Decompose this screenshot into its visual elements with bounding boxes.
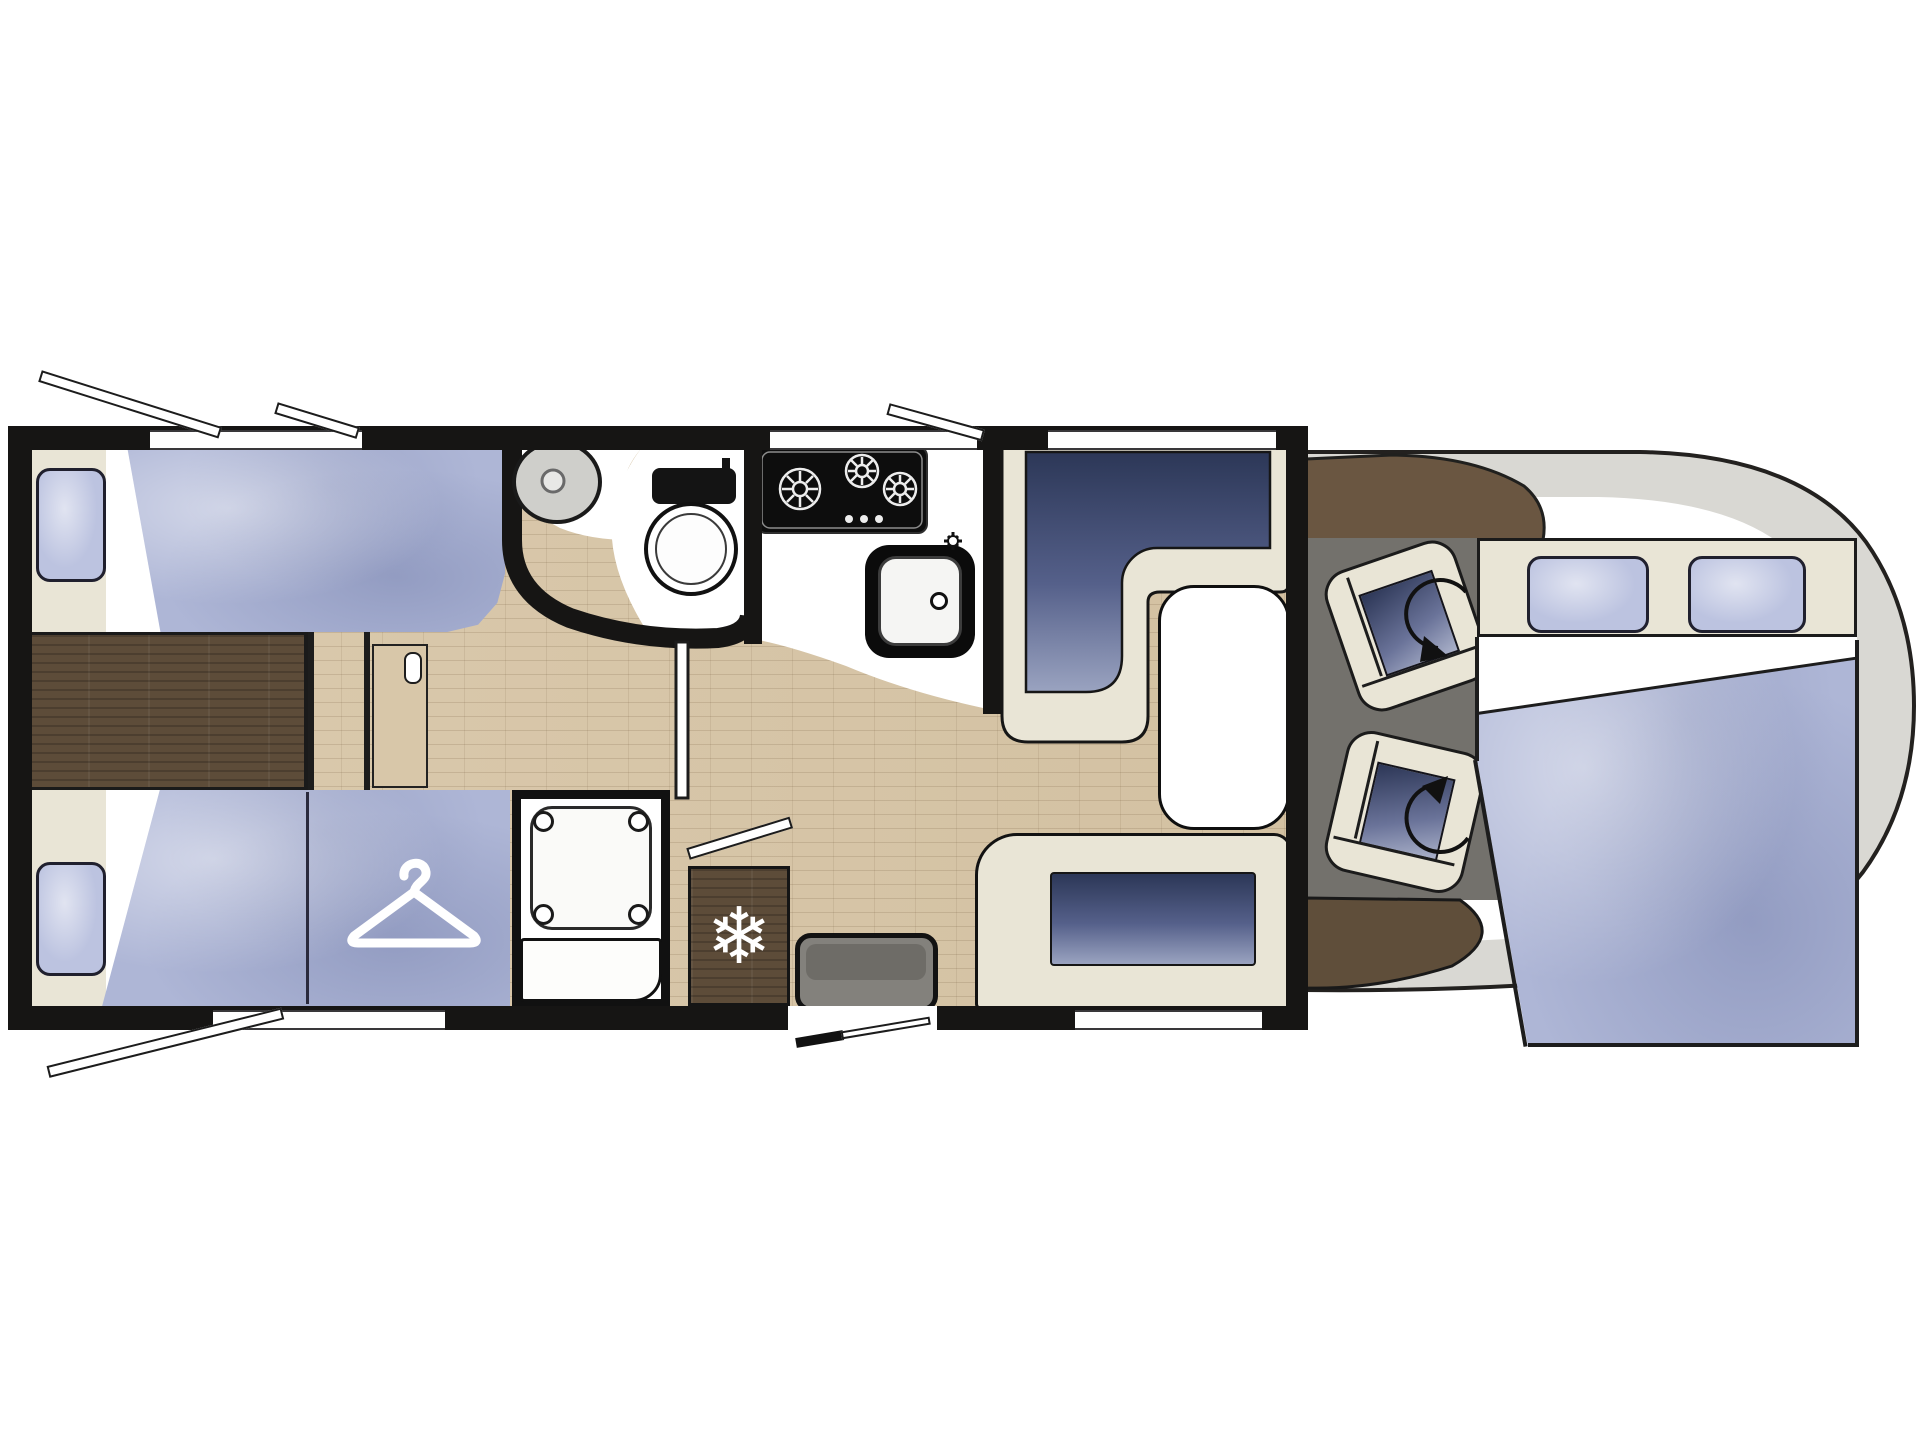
window-top-rear: [150, 430, 362, 450]
floorplan-canvas: ❄: [0, 0, 1920, 1440]
dinette-seat-drawing: [0, 0, 1920, 1440]
side-bench-cushion: [1050, 872, 1256, 966]
window-top-kitchen: [770, 430, 977, 450]
window-top-dinette: [1048, 430, 1276, 450]
window-bottom-dinette: [1075, 1010, 1262, 1030]
wall-cab-divider: [1286, 426, 1308, 1030]
pedestal-table: [1158, 585, 1290, 830]
wall-rear-left: [8, 426, 32, 1030]
